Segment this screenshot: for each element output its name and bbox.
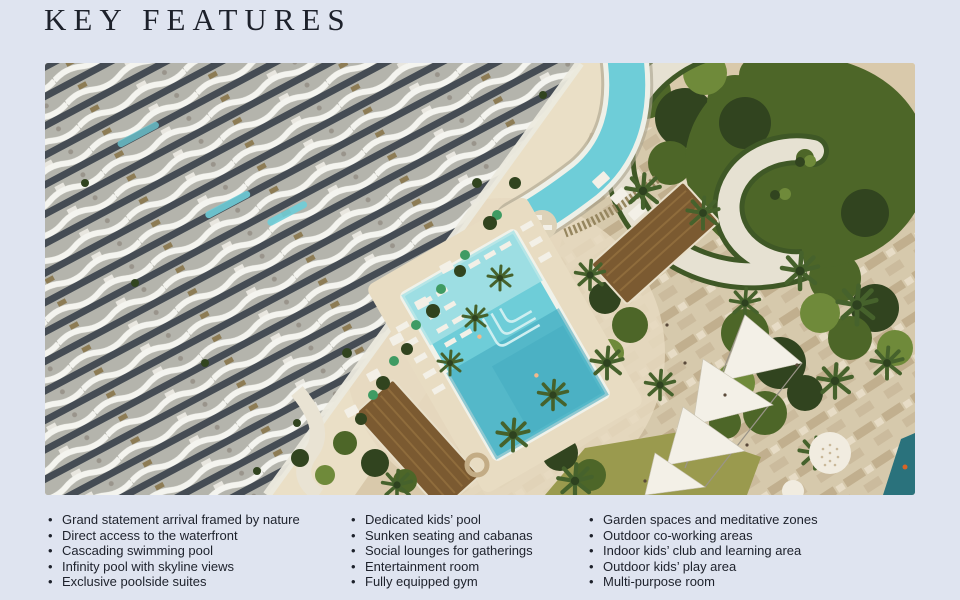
feature-item: Grand statement arrival framed by nature xyxy=(45,512,300,528)
feature-item: Social lounges for gatherings xyxy=(348,543,533,559)
feature-item: Garden spaces and meditative zones xyxy=(586,512,818,528)
page-title: KEY FEATURES xyxy=(44,2,352,38)
feature-column-1: Grand statement arrival framed by nature… xyxy=(45,512,300,590)
feature-item: Cascading swimming pool xyxy=(45,543,300,559)
key-features-aerial-render xyxy=(45,63,915,495)
aerial-illustration xyxy=(45,63,915,495)
feature-item: Indoor kids’ club and learning area xyxy=(586,543,818,559)
feature-item: Dedicated kids’ pool xyxy=(348,512,533,528)
feature-item: Exclusive poolside suites xyxy=(45,574,300,590)
feature-item: Outdoor co-working areas xyxy=(586,528,818,544)
feature-column-2: Dedicated kids’ pool Sunken seating and … xyxy=(348,512,533,590)
kayak-dot xyxy=(903,465,908,470)
feature-item: Direct access to the waterfront xyxy=(45,528,300,544)
feature-item: Outdoor kids’ play area xyxy=(586,559,818,575)
feature-item: Multi-purpose room xyxy=(586,574,818,590)
feature-item: Entertainment room xyxy=(348,559,533,575)
feature-item: Sunken seating and cabanas xyxy=(348,528,533,544)
feature-column-3: Garden spaces and meditative zones Outdo… xyxy=(586,512,818,590)
feature-item: Fully equipped gym xyxy=(348,574,533,590)
feature-item: Infinity pool with skyline views xyxy=(45,559,300,575)
